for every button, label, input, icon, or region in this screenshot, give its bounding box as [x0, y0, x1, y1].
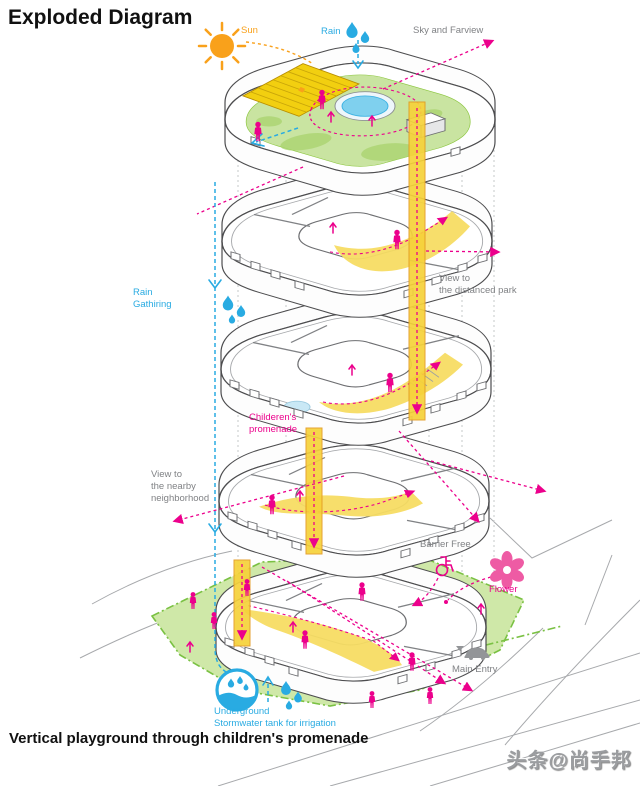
rain-label: Rain [321, 26, 341, 38]
underground-tank-label: Underground Stormwater tank for irrigati… [214, 706, 336, 730]
rain-gathering-label: Rain Gathiring [133, 287, 172, 311]
exploded-diagram-page: Exploded Diagram Sun Rain Sky and Farvie… [0, 0, 640, 786]
sun-icon [199, 23, 245, 69]
nearby-neighborhood-label: View to the nearby neighborhood [151, 469, 209, 505]
footer-title: Vertical playground through children's p… [9, 730, 368, 749]
rooftop-pool [335, 92, 395, 121]
page-title: Exploded Diagram [8, 5, 192, 31]
main-entry-label: Main Entry [452, 664, 497, 676]
sun-label: Sun [241, 25, 258, 37]
sky-farview-label: Sky and Farview [413, 25, 483, 37]
floor-2 [219, 428, 489, 577]
childrens-promenade-label: Childeren's promenade [249, 412, 297, 436]
underground-tank-icon [217, 670, 257, 710]
rain-gathering-drops-icon [223, 296, 245, 324]
diagram-canvas [0, 0, 640, 786]
barrier-free-label: Barrier Free [420, 539, 471, 551]
watermark: 头条@尚手邦 [506, 749, 632, 774]
distanced-park-label: View to the distanced park [439, 273, 517, 297]
flower-label: Flower [489, 584, 518, 596]
roof-floor [225, 46, 495, 195]
